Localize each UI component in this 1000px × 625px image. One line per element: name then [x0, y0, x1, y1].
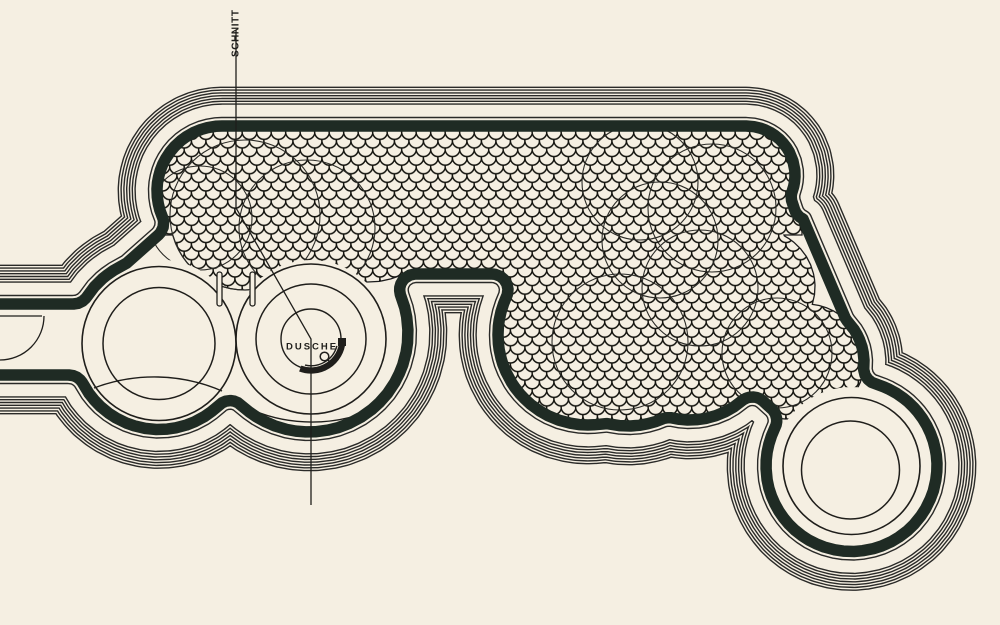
svg-text:SCHNITT: SCHNITT [231, 9, 242, 57]
svg-text:DUSCHE: DUSCHE [286, 342, 338, 353]
